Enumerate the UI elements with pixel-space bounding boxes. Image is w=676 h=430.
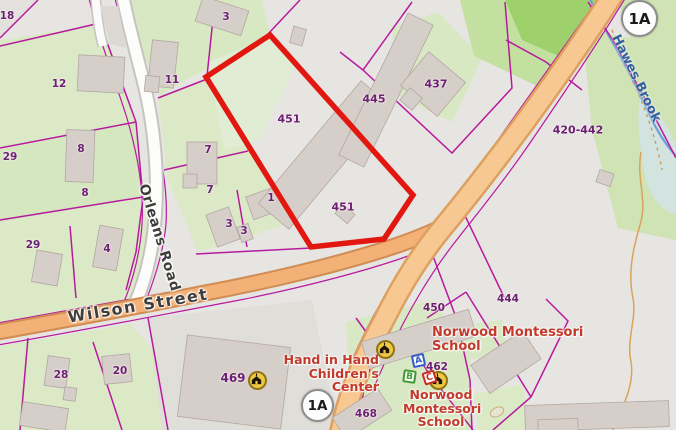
poi-line: Children's xyxy=(278,367,379,381)
schoolhouse-glyph xyxy=(378,342,391,355)
parcel-label: 12 xyxy=(52,78,67,90)
schoolhouse-glyph xyxy=(250,373,263,386)
parcel-label: 11 xyxy=(165,74,180,86)
parcel-label: 1 xyxy=(267,192,274,204)
parcel-label: 451 xyxy=(332,201,355,214)
block-a: A xyxy=(411,353,426,368)
route-1a-shield: 1A xyxy=(621,0,658,37)
parcel-label: 28 xyxy=(54,369,69,381)
parcel-label: 450 xyxy=(423,302,445,314)
parcel-label: 7 xyxy=(206,184,213,196)
poi-line: School xyxy=(432,340,583,354)
parcel-label: 20 xyxy=(113,365,128,377)
hand-in-hand-label: Hand in Hand Children's Center xyxy=(278,353,379,394)
norwood-montessori-lower-label: Norwood Montessori School xyxy=(403,388,479,429)
norwood-montessori-upper-label: Norwood Montessori School xyxy=(432,326,583,353)
parcel-label: 469 xyxy=(220,371,245,385)
parcel-label: 3 xyxy=(222,11,229,23)
parcel-label: 4 xyxy=(103,243,110,255)
poi-line: Hand in Hand xyxy=(278,353,379,367)
parcel-label: 451 xyxy=(278,113,301,126)
poi-line: School xyxy=(403,415,479,429)
school-icon xyxy=(376,340,395,359)
parcel-label: 437 xyxy=(425,78,448,91)
parcel-label: 444 xyxy=(497,293,519,305)
parcel-label: 3 xyxy=(240,225,247,237)
parcel-label: 29 xyxy=(3,151,18,163)
poi-line: Norwood Montessori xyxy=(432,326,583,340)
parcel-label: 3 xyxy=(225,218,232,230)
parcel-label: 420-442 xyxy=(553,124,604,137)
parcel-label: 468 xyxy=(355,408,377,420)
route-1a-shield: 1A xyxy=(301,389,334,422)
poi-line: Norwood xyxy=(403,388,479,402)
school-icon xyxy=(248,371,267,390)
parcel-label: 29 xyxy=(26,239,41,251)
parcel-label: 8 xyxy=(77,143,84,155)
poi-line: Center xyxy=(278,380,379,394)
parcel-label: 7 xyxy=(204,144,211,156)
poi-line: Montessori xyxy=(403,402,479,416)
map-canvas[interactable]: 18 3 12 11 29 8 8 7 7 29 4 1 3 3 451 451… xyxy=(0,0,676,430)
parcel-label: 18 xyxy=(0,10,14,22)
parcel-label: 445 xyxy=(363,93,386,106)
parcel-label: 8 xyxy=(81,187,88,199)
block-b: B xyxy=(402,369,417,384)
